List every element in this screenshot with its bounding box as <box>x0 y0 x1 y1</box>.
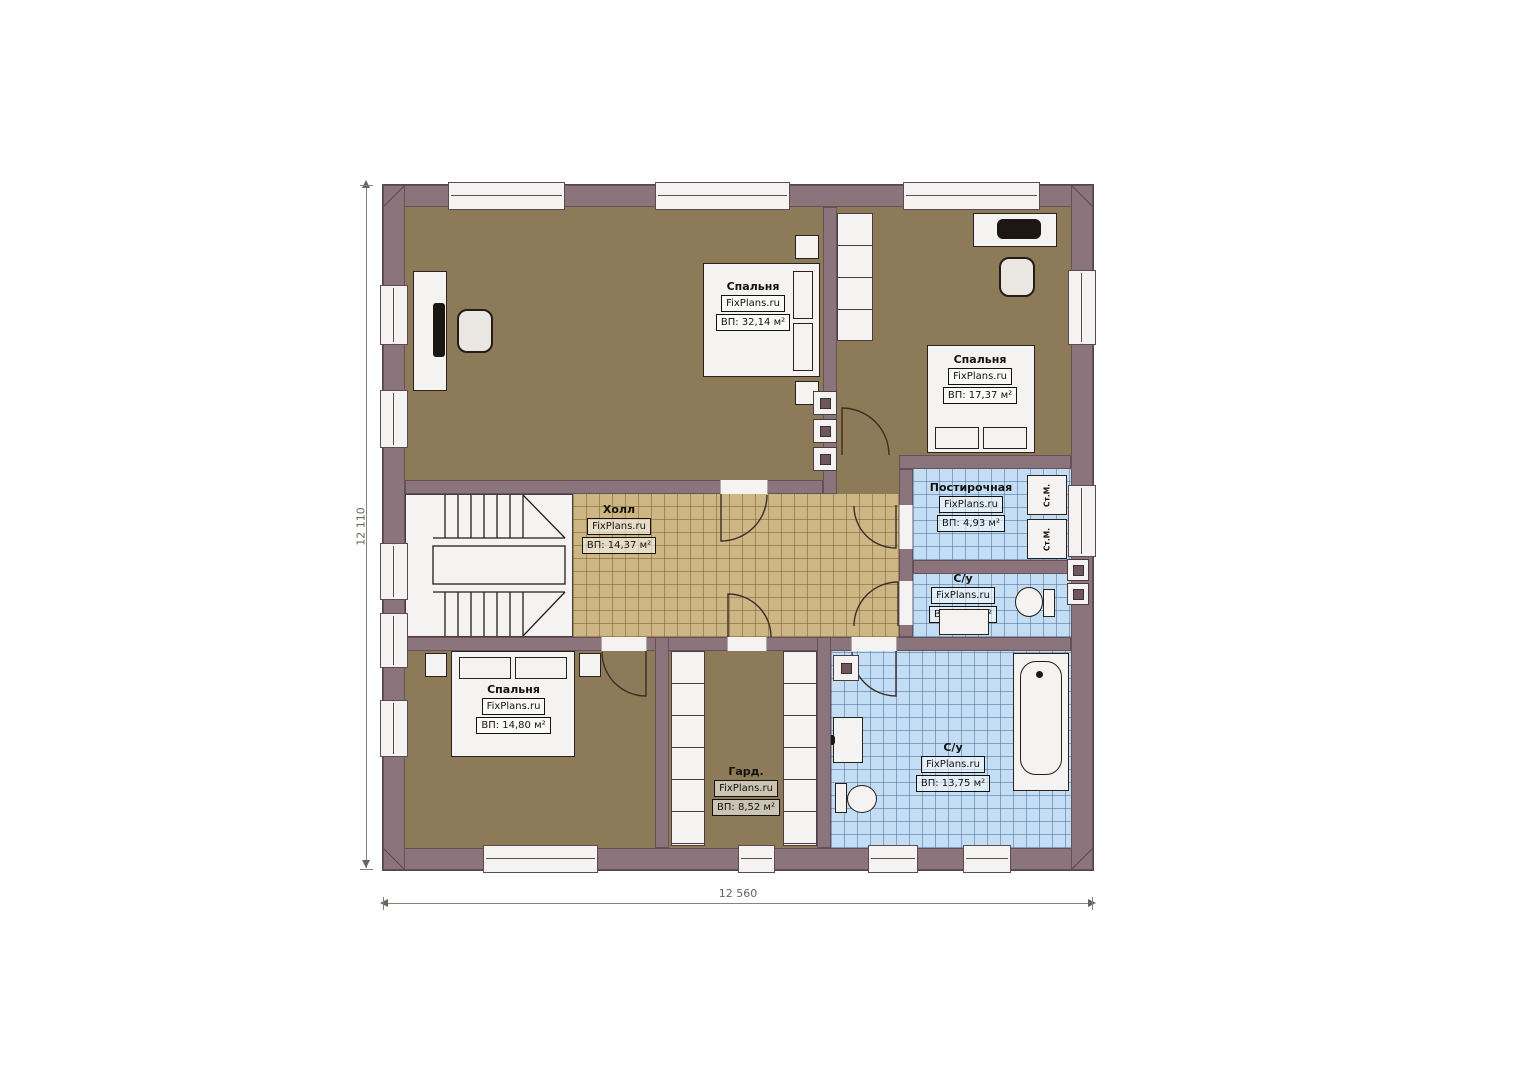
door-arc <box>841 407 889 455</box>
door-opening <box>720 480 768 494</box>
door-opening <box>727 637 767 651</box>
room-name: С/у <box>908 572 1018 585</box>
dimension-tick <box>360 185 373 186</box>
washing-machine-symbol: Ст.М. <box>1027 519 1067 559</box>
window <box>483 845 598 873</box>
toilet-symbol <box>847 785 877 813</box>
brand-badge: FixPlans.ru <box>587 518 651 535</box>
drain-icon <box>1036 671 1043 678</box>
shaft-symbol <box>813 419 837 443</box>
window <box>1068 485 1096 557</box>
window <box>903 182 1040 210</box>
vanity-symbol <box>939 609 989 635</box>
window <box>380 700 408 757</box>
window <box>868 845 918 873</box>
window <box>963 845 1011 873</box>
toilet-tank-symbol <box>835 783 847 813</box>
toilet-tank-symbol <box>1043 589 1055 617</box>
room-name: Спальня <box>688 280 818 293</box>
brand-badge: FixPlans.ru <box>482 698 546 715</box>
pillow-symbol <box>515 657 567 679</box>
door-arc <box>853 581 899 627</box>
wall-bedroom3-right <box>655 637 669 848</box>
door-opening <box>601 637 647 651</box>
nightstand-symbol <box>579 653 601 677</box>
room-label-wardrobe: Гард. FixPlans.ru ВП: 8,52 м² <box>701 765 791 816</box>
washer-label: Ст.М. <box>1028 476 1066 514</box>
door-arc <box>727 593 771 637</box>
floor-plan: Ст.М. Ст.М. Спальня FixPlans.ru ВП: 32,1… <box>383 185 1093 870</box>
window <box>1068 270 1096 345</box>
stairs-symbol <box>405 494 573 637</box>
closet-symbol <box>783 651 817 846</box>
room-name: Постирочная <box>911 481 1031 494</box>
chair-symbol <box>999 257 1035 297</box>
page: { "rooms": [ {"name": "Спальня", "brand"… <box>0 0 1528 1080</box>
bathtub-inner <box>1020 661 1062 775</box>
area-badge: ВП: 4,93 м² <box>937 515 1005 532</box>
sink-symbol <box>833 717 863 763</box>
nightstand-symbol <box>425 653 447 677</box>
door-arc <box>853 505 897 549</box>
brand-badge: FixPlans.ru <box>721 295 785 312</box>
room-name: С/у <box>898 741 1008 754</box>
tv-icon <box>997 219 1041 239</box>
nightstand-symbol <box>795 235 819 259</box>
area-badge: ВП: 32,14 м² <box>716 314 790 331</box>
room-name: Гард. <box>701 765 791 778</box>
room-label-bedroom-2: Спальня FixPlans.ru ВП: 17,37 м² <box>915 353 1045 404</box>
room-label-laundry: Постирочная FixPlans.ru ВП: 4,93 м² <box>911 481 1031 532</box>
window <box>380 543 408 600</box>
room-name: Холл <box>569 503 669 516</box>
corner-miter <box>1071 185 1093 207</box>
area-badge: ВП: 17,37 м² <box>943 387 1017 404</box>
dimension-line <box>385 903 1091 904</box>
monitor-icon <box>433 303 445 357</box>
room-label-bathroom: С/у FixPlans.ru ВП: 13,75 м² <box>898 741 1008 792</box>
vestibule-floor <box>837 455 899 494</box>
brand-badge: FixPlans.ru <box>939 496 1003 513</box>
washer-label: Ст.М. <box>1028 520 1066 558</box>
closet-symbol <box>837 213 873 341</box>
arrow-down-icon <box>362 860 370 868</box>
washing-machine-symbol: Ст.М. <box>1027 475 1067 515</box>
shaft-symbol <box>813 447 837 471</box>
area-badge: ВП: 13,75 м² <box>916 775 990 792</box>
area-badge: ВП: 8,52 м² <box>712 799 780 816</box>
shaft-symbol <box>1067 559 1089 581</box>
room-name: Спальня <box>461 683 566 696</box>
wall-bedroom2-bottom <box>899 455 1071 469</box>
shaft-symbol <box>813 391 837 415</box>
dimension-width-label: 12 560 <box>383 887 1093 900</box>
corner-miter <box>383 848 405 870</box>
dimension-tick <box>360 869 373 870</box>
toilet-symbol <box>1015 587 1043 617</box>
arrow-up-icon <box>362 180 370 188</box>
window <box>448 182 565 210</box>
door-arc <box>601 651 647 697</box>
arrow-left-icon <box>380 899 388 907</box>
brand-badge: FixPlans.ru <box>931 587 995 604</box>
closet-symbol <box>671 651 705 846</box>
pillow-symbol <box>983 427 1027 449</box>
room-label-bedroom-1: Спальня FixPlans.ru ВП: 32,14 м² <box>688 280 818 331</box>
window <box>380 285 408 345</box>
brand-badge: FixPlans.ru <box>948 368 1012 385</box>
area-badge: ВП: 14,80 м² <box>476 717 550 734</box>
room-name: Спальня <box>915 353 1045 366</box>
window <box>380 613 408 668</box>
door-arc <box>720 494 768 542</box>
brand-badge: FixPlans.ru <box>921 756 985 773</box>
corner-miter <box>1071 848 1093 870</box>
pillow-symbol <box>459 657 511 679</box>
shaft-symbol <box>1067 583 1089 605</box>
dimension-height-label: 12 110 <box>355 497 368 557</box>
window <box>655 182 790 210</box>
brand-badge: FixPlans.ru <box>714 780 778 797</box>
shaft-symbol <box>833 655 859 681</box>
pillow-symbol <box>935 427 979 449</box>
door-opening <box>851 637 897 651</box>
room-label-bedroom-3: Спальня FixPlans.ru ВП: 14,80 м² <box>461 683 566 734</box>
wall-wardrobe-right <box>817 637 831 848</box>
window <box>380 390 408 448</box>
chair-symbol <box>457 309 493 353</box>
room-label-hall: Холл FixPlans.ru ВП: 14,37 м² <box>569 503 669 554</box>
area-badge: ВП: 14,37 м² <box>582 537 656 554</box>
corner-miter <box>383 185 405 207</box>
window <box>738 845 775 873</box>
